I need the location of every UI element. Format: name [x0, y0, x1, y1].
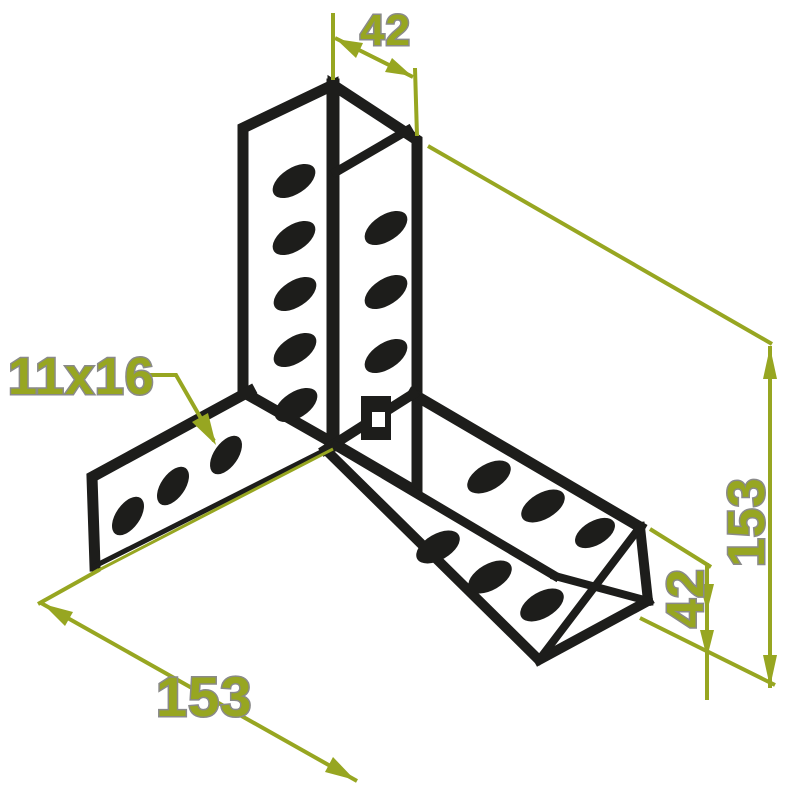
bracket-inner-top-edge: [336, 130, 408, 172]
dimension-label-top-width: 42: [360, 6, 411, 55]
slot: [359, 204, 413, 252]
slot: [267, 157, 321, 205]
extension-line: [38, 570, 99, 604]
arrowhead-icon: [336, 39, 363, 58]
slot: [359, 268, 413, 316]
small-nail-hole-window: [372, 412, 385, 427]
slot: [570, 512, 620, 555]
arrowhead-icon: [763, 347, 777, 379]
dimension-label-bottom-length: 153: [156, 665, 252, 728]
dimension-label-slot-size: 11x16: [8, 348, 155, 406]
slot: [462, 454, 517, 501]
dimension-flange-width: 42: [650, 529, 715, 700]
extension-line: [428, 146, 772, 344]
angle-bracket-drawing: 42 11x16 153 153 42: [0, 0, 787, 792]
extension-line: [415, 68, 417, 136]
arrowhead-icon: [325, 757, 355, 780]
slot: [359, 332, 413, 380]
dimension-label-flange-width: 42: [657, 568, 715, 628]
arrowhead-icon: [43, 604, 73, 626]
slot: [515, 582, 570, 629]
bracket-left-vertical-face: [243, 85, 333, 443]
drawing-canvas: 42 11x16 153 153 42: [0, 0, 787, 792]
slot: [106, 491, 151, 541]
slot: [516, 483, 571, 530]
slot: [268, 270, 322, 318]
dimension-label-side-height: 153: [718, 477, 776, 567]
bracket-outline: [92, 85, 648, 660]
slot: [267, 214, 321, 262]
extension-line: [650, 529, 711, 567]
bracket-end-cap-right-edge: [640, 527, 648, 601]
bracket-slots: [106, 157, 621, 628]
slot: [268, 326, 322, 374]
slot: [151, 461, 196, 511]
arrowhead-icon: [385, 58, 412, 76]
dimension-bottom-length: 153: [38, 449, 357, 781]
